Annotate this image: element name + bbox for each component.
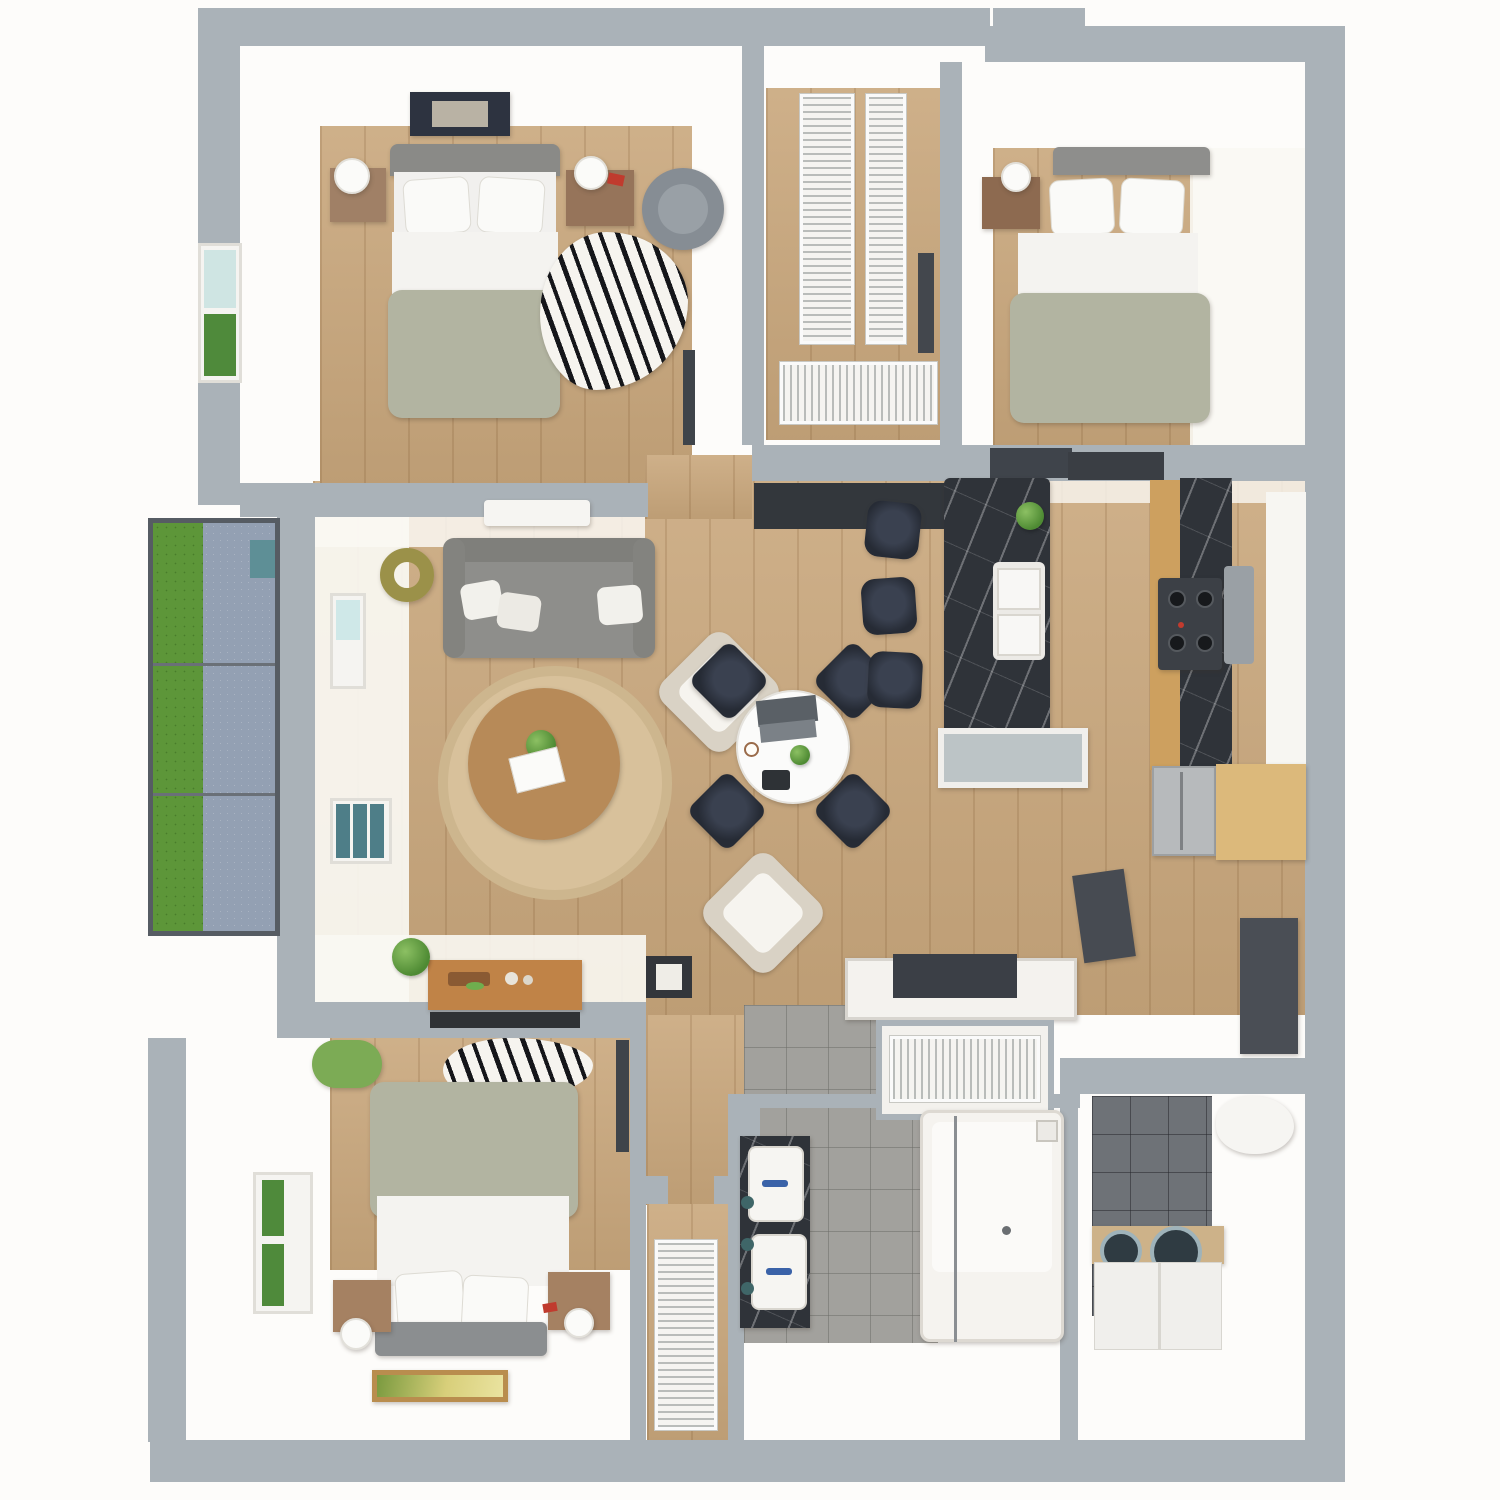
bath-showerhead [1036, 1120, 1058, 1142]
bedroom1-pillow-right [476, 176, 546, 236]
wall-laundry-north [1060, 1058, 1305, 1094]
bath-faucet-3 [741, 1282, 754, 1295]
living-sofa-pillow-3 [596, 584, 643, 626]
bedroom1-sheet [392, 232, 558, 294]
bedroom3-window-pane-bottom [262, 1244, 284, 1306]
stove-burner-3 [1168, 634, 1186, 652]
bedroom1-pillow-left [402, 176, 472, 236]
bath-handle-1 [762, 1180, 788, 1187]
bedroom2-sheet [1018, 233, 1198, 297]
front-door [1240, 918, 1298, 1054]
entry-closet-wire-shelf [890, 1036, 1040, 1102]
kitchen-cabinet-wood [1216, 764, 1306, 860]
console-jar-2 [523, 975, 533, 985]
stove-burner-4 [1196, 634, 1214, 652]
balcony-rail-2 [153, 793, 275, 796]
living-window-lower-pane-3 [370, 804, 384, 858]
console-mat [430, 1012, 580, 1028]
stove-burner-2 [1196, 590, 1214, 608]
balcony-frame [148, 518, 280, 936]
bedroom1-armchair-cushion [658, 184, 708, 234]
bedroom2-headboard [1053, 147, 1210, 175]
island-sink-bowl-2 [997, 614, 1041, 656]
dining-plant [790, 745, 810, 765]
bedroom1-blanket [388, 290, 560, 418]
laundry-robe [1216, 1096, 1294, 1154]
bath-shower-inner [932, 1122, 1052, 1272]
closet-mirror [918, 253, 934, 353]
wall-top-b [985, 26, 1307, 62]
laundry-unit-divider [1158, 1262, 1161, 1350]
closet-wire-shelf-right [866, 94, 906, 344]
wall-living-west [277, 498, 315, 1038]
wall-left-lower [148, 1038, 186, 1442]
living-plant-pot [392, 938, 430, 976]
dining-tray [762, 770, 790, 790]
bedroom1-lamp-left [334, 158, 370, 194]
bath-faucet-1 [741, 1196, 754, 1209]
bedroom3-lamp-right [564, 1308, 594, 1338]
kitchen-stove [1158, 578, 1222, 670]
bath-faucet-2 [741, 1238, 754, 1251]
kitchen-fridge [1152, 766, 1216, 856]
kitchen-window-light [1266, 492, 1306, 772]
stove-knob-red [1178, 622, 1184, 628]
fridge-handle [1180, 772, 1183, 850]
bedroom3-door [616, 1040, 629, 1152]
bedroom1-window-pane-bottom [204, 314, 236, 376]
bedroom3-footboard-bench [375, 1322, 547, 1356]
bar-stool-3 [867, 651, 924, 710]
wall-bedroom3-east [630, 1038, 646, 1440]
bar-stool-2 [860, 576, 918, 636]
bedroom3-lamp-left [340, 1318, 372, 1350]
bedroom1-lamp-right [574, 156, 608, 190]
wall-top-a [198, 8, 990, 46]
dining-mug [744, 742, 759, 757]
bar-stool-1 [863, 499, 923, 560]
entry-cabinet-door-open [893, 954, 1017, 998]
closet-wire-shelf-left [800, 94, 854, 344]
bedroom1-picture-photo [432, 101, 488, 127]
bath-curtain-rod [954, 1116, 957, 1342]
living-ac-unit [484, 500, 590, 526]
bedroom2-lamp [1001, 162, 1031, 192]
living-sofa-pillow-2 [496, 591, 543, 632]
hall-top-floor [645, 455, 752, 519]
bedroom2-pillow-left [1049, 177, 1116, 236]
closet-wire-shelf-bottom [780, 362, 937, 424]
bedroom3-pouf [312, 1040, 382, 1088]
wall-bedroom1-closet [742, 44, 764, 445]
wall-closet-bedroom2 [940, 62, 962, 445]
stove-burner-1 [1168, 590, 1186, 608]
bedroom2-pillow-right [1119, 177, 1186, 236]
bath-handle-2 [766, 1268, 792, 1275]
balcony-rail-1 [153, 663, 275, 666]
bedroom1-window-pane-top [204, 250, 236, 308]
kitchen-range-hood [1224, 566, 1254, 664]
console-jar-1 [505, 972, 518, 985]
bedroom3-floor-art [372, 1370, 508, 1402]
island-sink-bowl-1 [997, 568, 1041, 610]
living-window-lower-pane-1 [336, 804, 350, 858]
wall-closet3-north-a [646, 1176, 668, 1204]
living-floor-lamp [380, 548, 434, 602]
bath-drain [1002, 1226, 1011, 1235]
apartment-floor-plan [0, 0, 1500, 1500]
bedroom3-window-pane-top [262, 1180, 284, 1236]
closet3-wire-shelf [655, 1240, 717, 1430]
kitchen-cart [938, 728, 1088, 788]
kitchen-upper-cabinet-dark [1068, 452, 1164, 480]
wall-bottom [150, 1440, 1345, 1482]
wall-right [1305, 26, 1345, 1478]
island-plant [1016, 502, 1044, 530]
bedroom2-blanket [1010, 293, 1210, 423]
wall-bath-north-a [744, 1094, 878, 1108]
wall-closet-south [752, 445, 964, 481]
bedroom1-door [683, 350, 695, 445]
bedroom3-sheet [377, 1196, 569, 1286]
bedroom2-door-opening [990, 448, 1072, 478]
living-window-lower-pane-2 [353, 804, 367, 858]
living-window-upper-pane [336, 600, 360, 640]
console-leaf [466, 982, 484, 990]
living-wall-frame-inner [656, 964, 682, 990]
